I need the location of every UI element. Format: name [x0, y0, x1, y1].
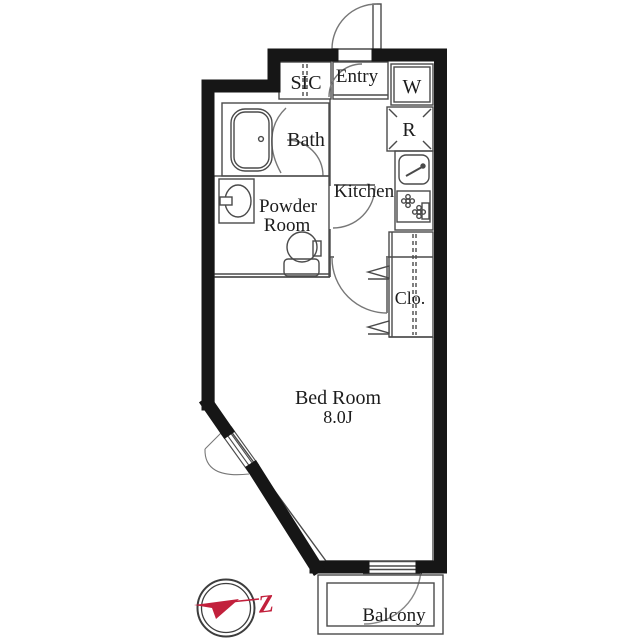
balcony-label: Balcony	[362, 605, 426, 626]
floor-plan-canvas: SIC Entry W R Bath Powder Room Kitchen C…	[0, 0, 640, 640]
bedroom-label: Bed Room	[295, 387, 382, 409]
compass: Z	[194, 580, 275, 637]
closet	[389, 232, 433, 337]
sic-label: SIC	[290, 72, 321, 94]
bath-label: Bath	[287, 129, 325, 151]
bedroom-size-label: 8.0J	[323, 407, 353, 427]
toilet	[284, 232, 321, 276]
room-labels: SIC Entry W R Bath Powder Room Kitchen C…	[259, 66, 426, 626]
fridge-label: R	[402, 119, 416, 141]
closet-door-arrows	[368, 266, 389, 334]
kitchen-sink	[399, 155, 429, 184]
north-letter: Z	[256, 590, 275, 619]
washer-label: W	[403, 76, 422, 98]
kitchen-label: Kitchen	[334, 181, 395, 202]
burner-icon	[402, 195, 415, 208]
burner-icon	[413, 206, 426, 219]
floor-plan: SIC Entry W R Bath Powder Room Kitchen C…	[0, 0, 640, 640]
closet-label: Clo.	[395, 288, 426, 308]
powder-room-label-line2: Room	[264, 215, 311, 236]
interior-walls	[205, 4, 443, 634]
stove	[397, 191, 430, 222]
entry-label: Entry	[336, 66, 379, 87]
bathtub	[231, 109, 272, 171]
vanity-sink	[219, 179, 254, 223]
powder-room-label-line1: Powder	[259, 196, 318, 217]
